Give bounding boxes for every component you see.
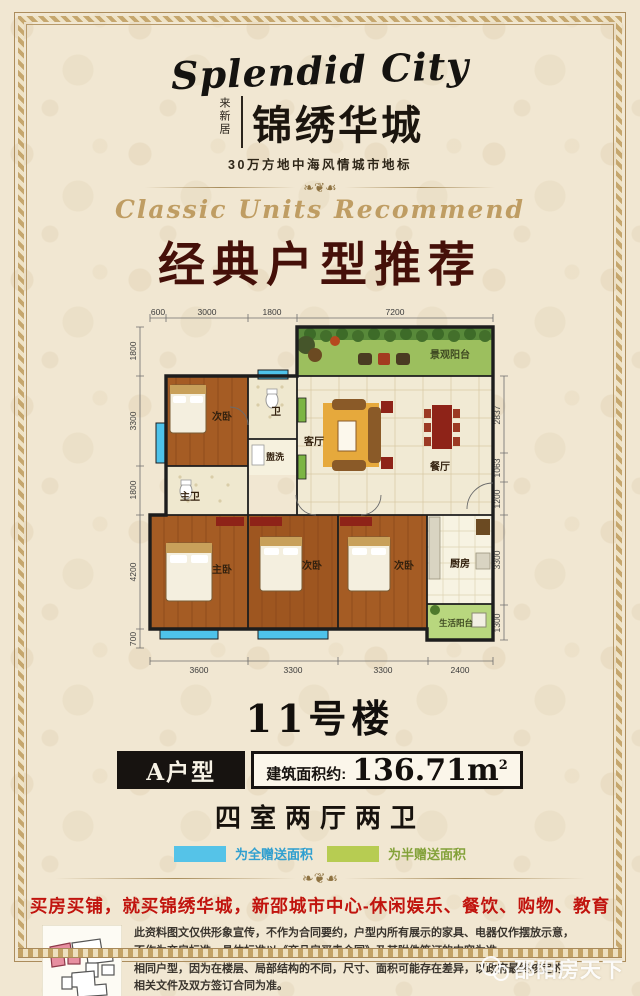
watermark: 邵阳房天下 xyxy=(480,954,624,984)
poster-page: Splendid City 来新居 锦绣华城 30万方地中海风情城市地标 ❧❦☙… xyxy=(0,0,640,996)
dim-top-1: 600 xyxy=(151,307,165,317)
legend-half-gift: 为半赠送面积 xyxy=(327,844,466,863)
dim-right-5: 1300 xyxy=(492,613,502,632)
area-value: 136.71m2 xyxy=(352,753,508,788)
disclaimer-line: 此资料图文仅供形象宣传，不作为合同要约，户型内所有展示的家具、电器仅作摆放示意， xyxy=(134,925,574,943)
area-label: 建筑面积约: xyxy=(266,763,346,784)
room-label-view-balcony: 景观阳台 xyxy=(430,348,470,361)
ornament-line xyxy=(55,878,296,879)
unit-type-row: A户型 建筑面积约: 136.71m2 xyxy=(117,751,523,789)
dim-left-2: 3300 xyxy=(128,411,138,430)
half-gift-swatch xyxy=(327,846,379,862)
full-gift-swatch xyxy=(174,846,226,862)
unit-type-badge: A户型 xyxy=(117,751,245,789)
dim-left-5: 700 xyxy=(128,632,138,646)
marketing-headline: 买房买铺，就买锦绣华城，新邵城市中心-休闲娱乐、餐饮、购物、教育 xyxy=(30,893,610,918)
dim-right-3: 1200 xyxy=(492,489,502,508)
legend-full-gift: 为全赠送面积 xyxy=(174,844,313,863)
flourish-icon: ❧❦☙ xyxy=(303,181,336,194)
dim-bottom-2: 3300 xyxy=(284,665,303,675)
floor-plan: 600 3000 1800 7200 1800 3300 1800 4200 7… xyxy=(105,305,535,686)
room-label-life-balcony: 生活阳台 xyxy=(439,618,474,628)
dim-bottom-3: 3300 xyxy=(374,665,393,675)
area-box: 建筑面积约: 136.71m2 xyxy=(251,751,523,789)
logo-vertical-text: 来新居 xyxy=(216,97,232,147)
ornament-divider-top: ❧❦☙ xyxy=(145,181,494,194)
section-subtitle-english: Classic Units Recommend xyxy=(115,195,525,224)
room-label-kitchen: 厨房 xyxy=(450,557,470,570)
dim-top-2: 3000 xyxy=(198,307,217,317)
dim-right-1: 2837 xyxy=(492,405,502,424)
ornament-line xyxy=(145,187,295,188)
area-superscript: 2 xyxy=(499,758,508,773)
dim-bottom-1: 3600 xyxy=(190,665,209,675)
flourish-icon: ❧❦☙ xyxy=(302,870,338,887)
dim-right-4: 3300 xyxy=(492,550,502,569)
dim-left-3: 1800 xyxy=(128,480,138,499)
room-label-bath: 卫 xyxy=(271,406,281,418)
watermark-text: 邵阳房天下 xyxy=(514,954,624,984)
wechat-icon xyxy=(480,956,510,982)
room-label-bed-right: 次卧 xyxy=(394,559,414,572)
full-gift-label: 为全赠送面积 xyxy=(235,844,313,863)
floor-plan-svg: 600 3000 1800 7200 1800 3300 1800 4200 7… xyxy=(105,305,535,681)
dim-bottom-4: 2400 xyxy=(451,665,470,675)
dim-right-2: 1063 xyxy=(492,458,502,477)
room-label-bed-mid: 次卧 xyxy=(302,559,322,572)
room-label-master-bed: 主卧 xyxy=(212,563,232,576)
room-label-bed-top: 次卧 xyxy=(212,410,232,423)
room-label-dining: 餐厅 xyxy=(429,460,450,473)
dim-left-4: 4200 xyxy=(128,562,138,581)
section-title: 经典户型推荐 xyxy=(158,226,482,295)
logo-divider xyxy=(241,96,243,148)
ornament-divider-bottom: ❧❦☙ xyxy=(55,870,585,887)
logo-chinese: 锦绣华城 xyxy=(252,93,424,151)
dim-left-1: 1800 xyxy=(128,341,138,360)
half-gift-label: 为半赠送面积 xyxy=(388,844,466,863)
logo-english: Splendid City xyxy=(170,43,470,98)
logo-tagline: 30万方地中海风情城市地标 xyxy=(228,154,412,173)
room-label-master-bath: 主卫 xyxy=(180,490,200,503)
siteplan-thumbnail xyxy=(42,925,122,996)
ornament-line xyxy=(344,878,585,879)
ornament-line xyxy=(345,187,495,188)
dim-top-4: 7200 xyxy=(386,307,405,317)
logo-chinese-block: 来新居 锦绣华城 xyxy=(216,93,424,151)
room-layout-text: 四室两厅两卫 xyxy=(215,798,425,835)
room-label-living: 客厅 xyxy=(303,435,324,448)
gift-area-legend: 为全赠送面积 为半赠送面积 xyxy=(174,844,466,863)
master-bath-floor xyxy=(166,466,248,515)
dim-top-3: 1800 xyxy=(263,307,282,317)
room-label-wash: 盥洗 xyxy=(266,451,284,462)
building-number: 11号楼 xyxy=(246,688,395,743)
